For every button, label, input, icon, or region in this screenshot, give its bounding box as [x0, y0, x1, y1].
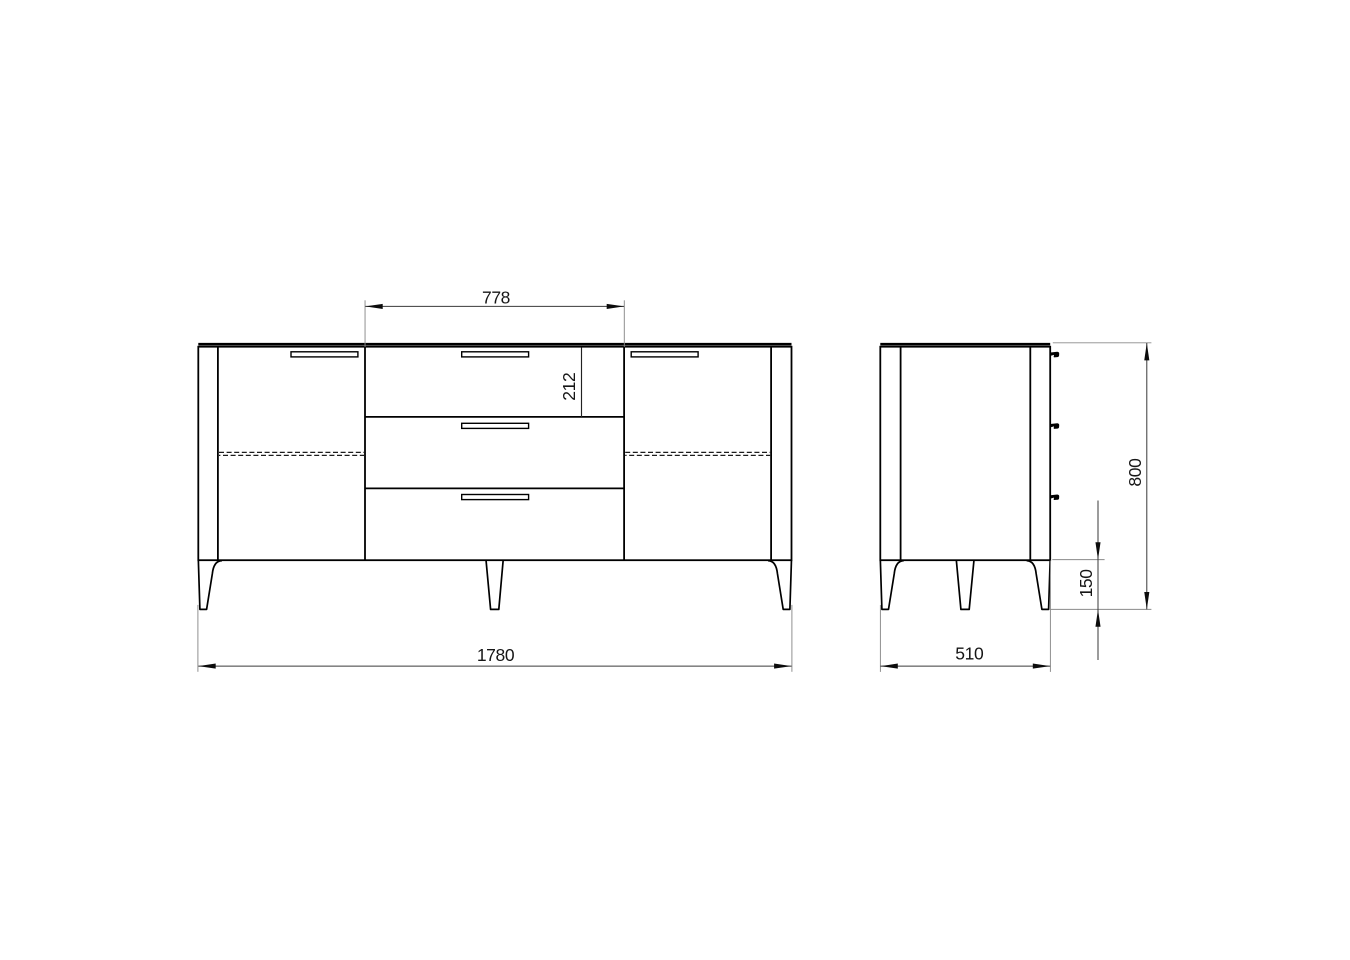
svg-text:510: 510 — [955, 644, 984, 664]
svg-text:1780: 1780 — [477, 645, 515, 665]
svg-text:778: 778 — [482, 287, 510, 307]
svg-text:212: 212 — [559, 373, 579, 401]
svg-text:800: 800 — [1125, 458, 1145, 487]
svg-text:150: 150 — [1076, 569, 1096, 598]
